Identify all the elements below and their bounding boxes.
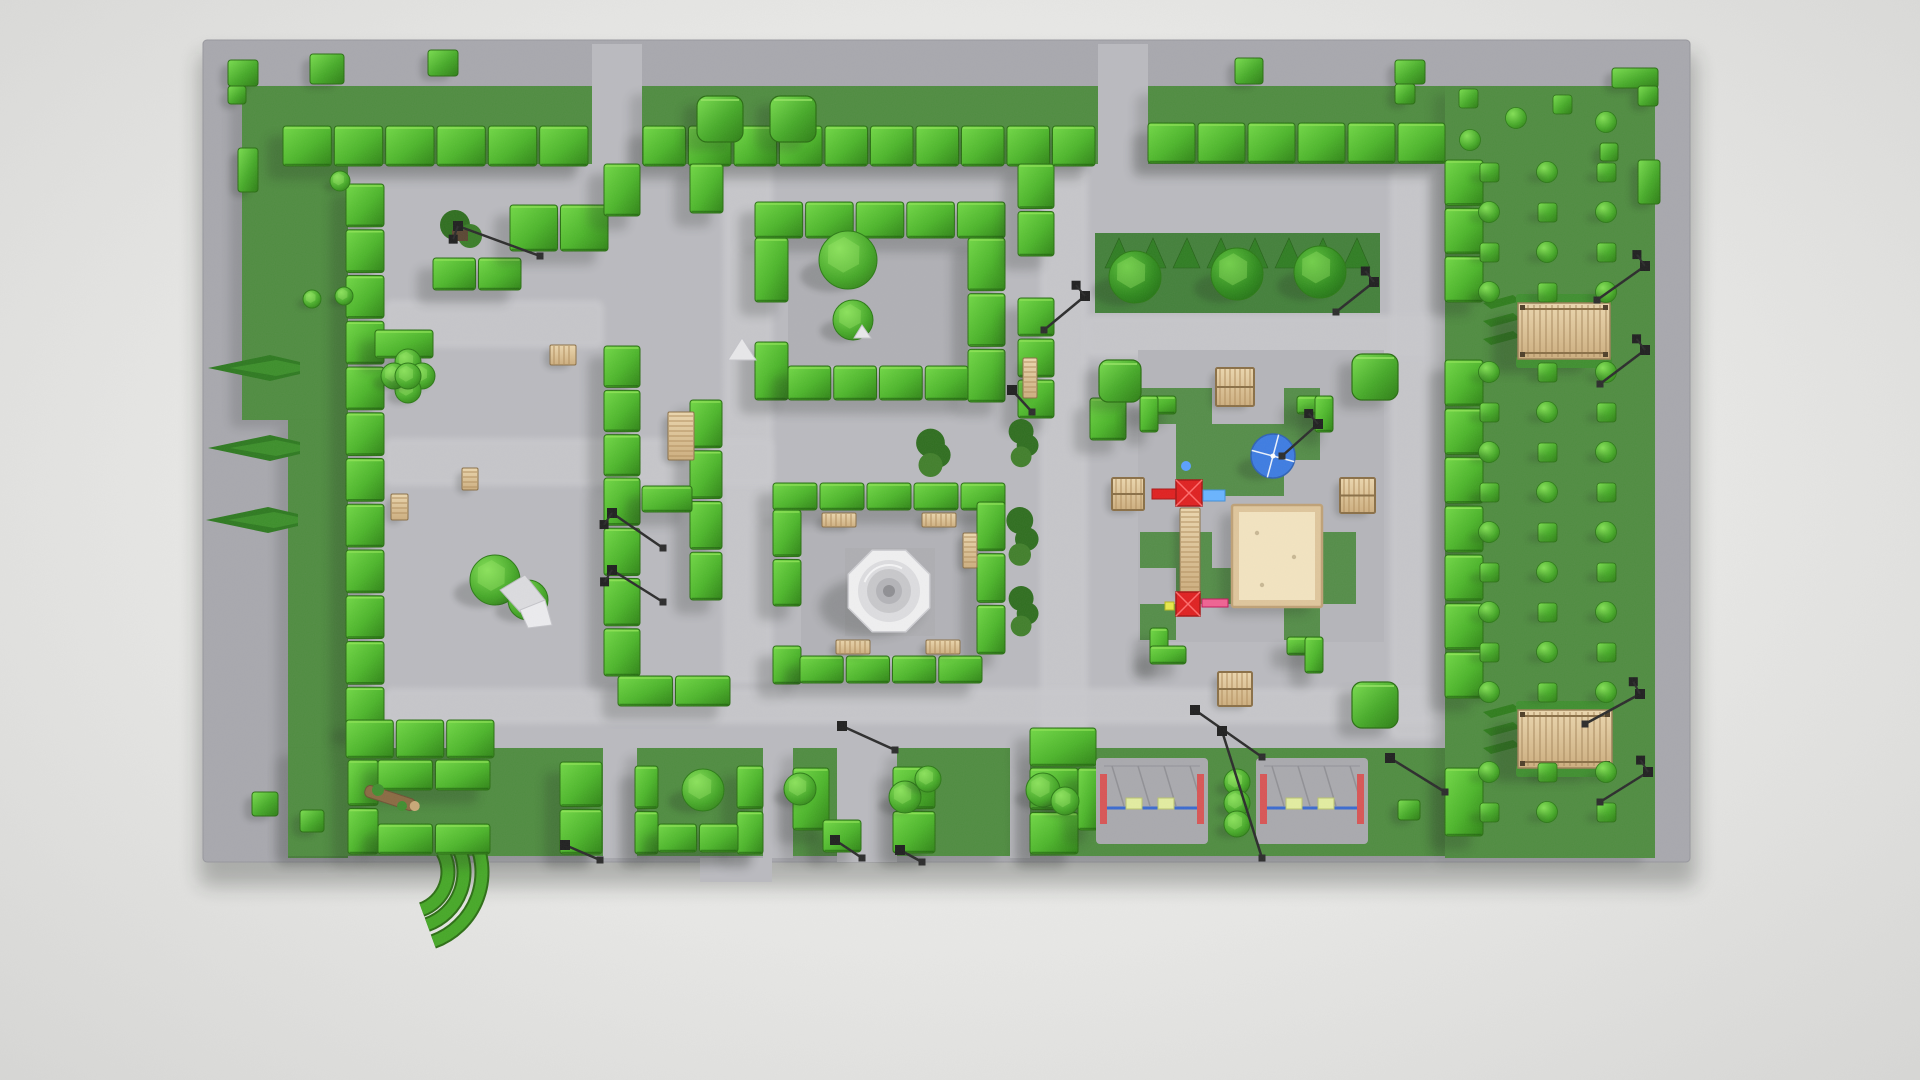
model-viewport[interactable] [0, 0, 1920, 1080]
park-scene-render [0, 0, 1920, 1080]
render-grain [0, 0, 1920, 1080]
